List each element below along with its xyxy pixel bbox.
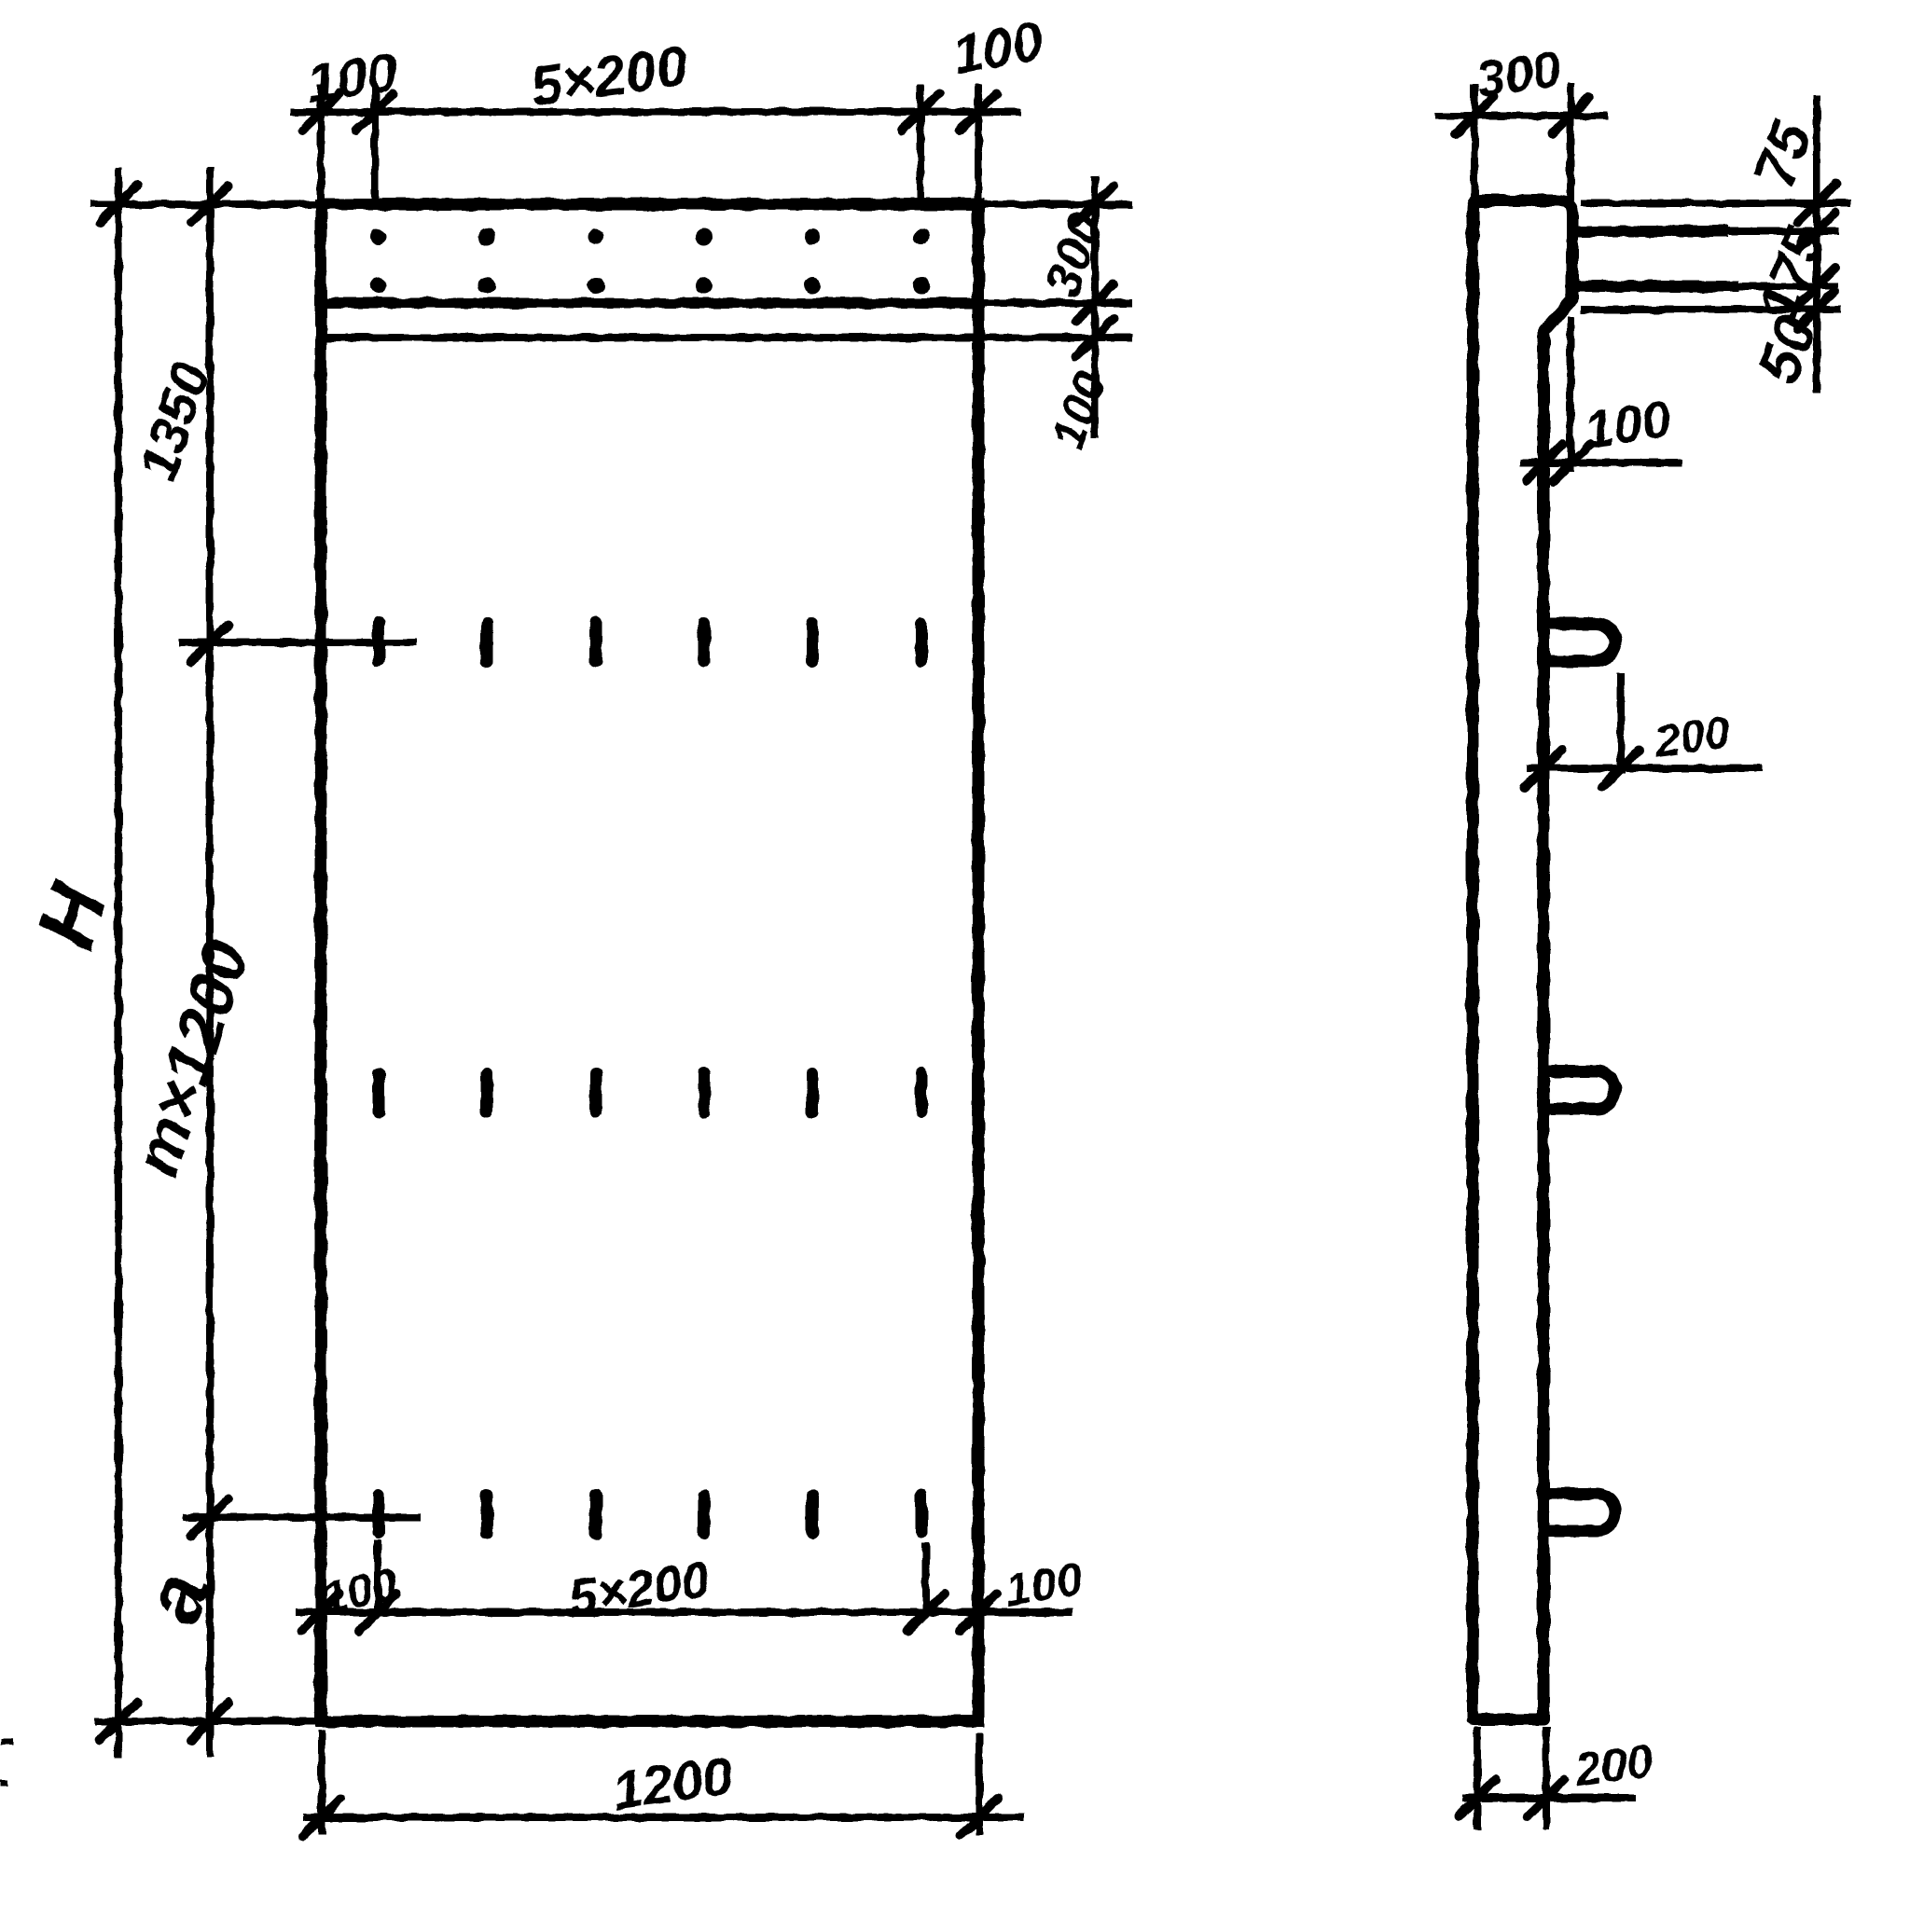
svg-text:100: 100 xyxy=(1581,389,1675,459)
svg-text:200: 200 xyxy=(1652,708,1734,767)
svg-text:300: 300 xyxy=(1474,41,1565,108)
svg-text:200: 200 xyxy=(1571,1734,1656,1797)
svg-text:100: 100 xyxy=(303,42,401,115)
